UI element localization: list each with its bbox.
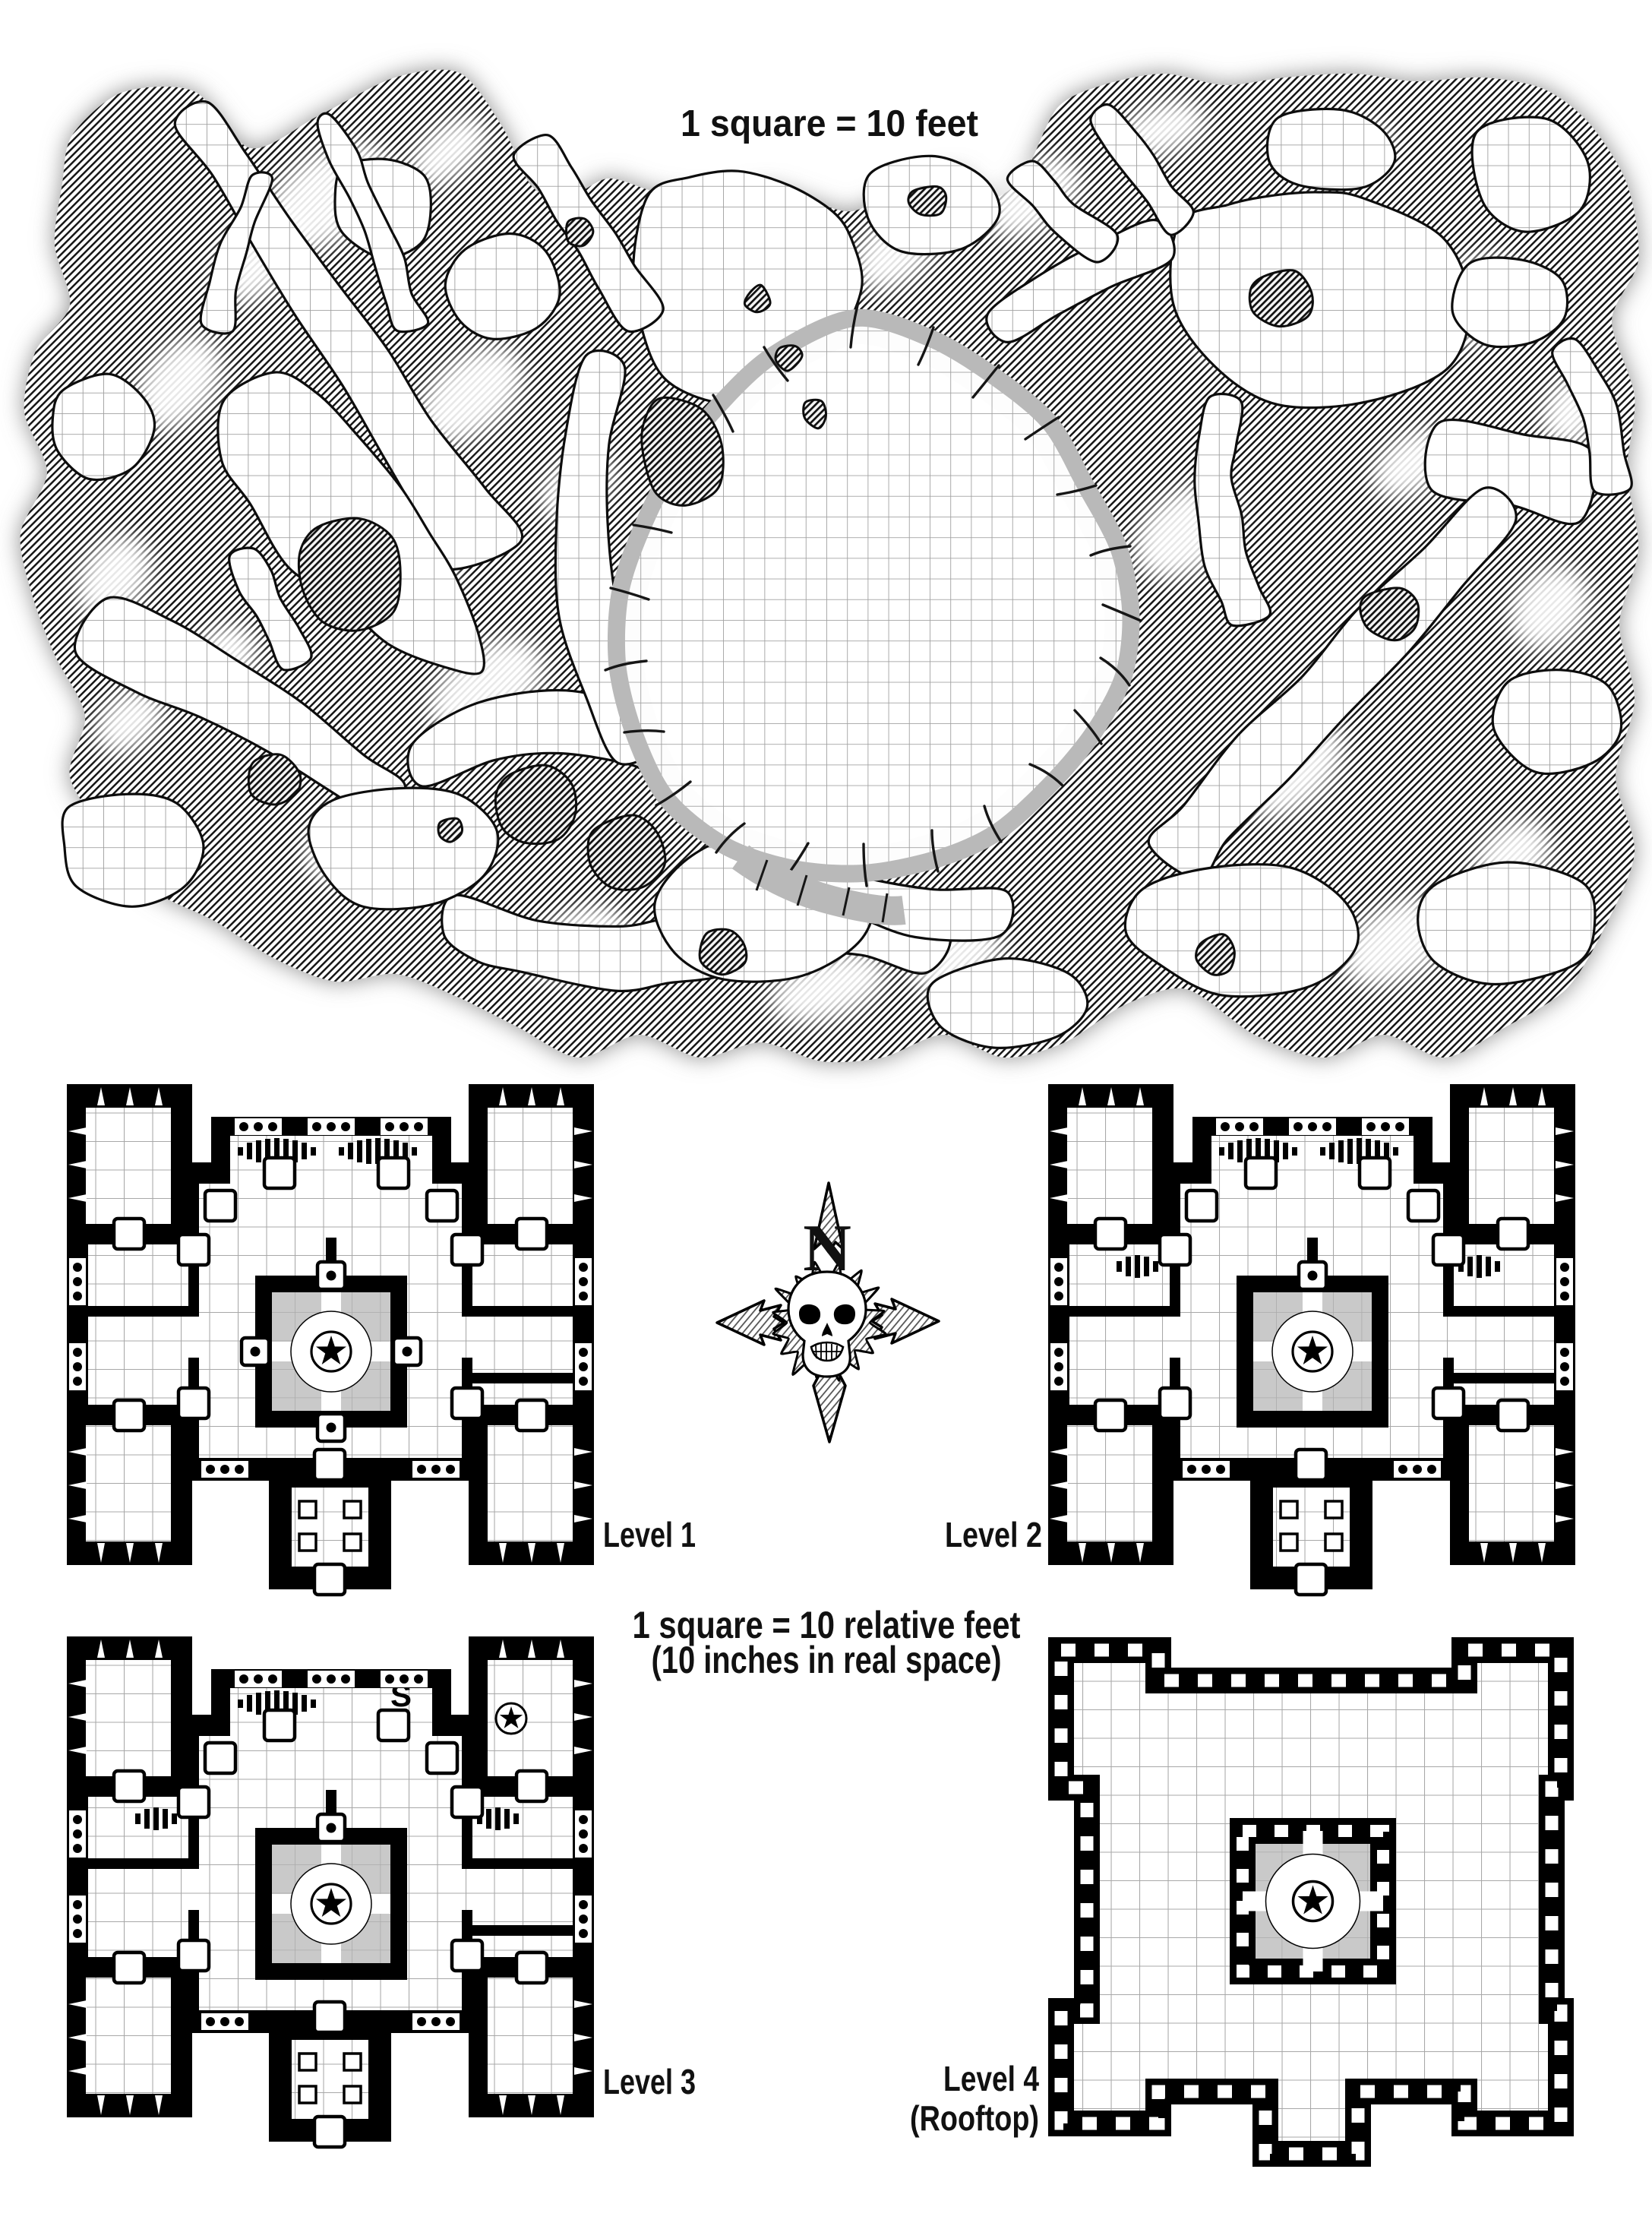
svg-text:Level 2: Level 2	[945, 1515, 1042, 1554]
svg-text:Level 4: Level 4	[943, 2059, 1039, 2098]
svg-text:(Rooftop): (Rooftop)	[910, 2098, 1039, 2138]
svg-text:(10 inches in real space): (10 inches in real space)	[652, 1639, 1002, 1681]
svg-text:Level 3: Level 3	[603, 2062, 696, 2101]
svg-text:Level 1: Level 1	[603, 1515, 696, 1554]
svg-text:N: N	[803, 1212, 851, 1285]
svg-text:1 square = 10 feet: 1 square = 10 feet	[681, 103, 978, 144]
